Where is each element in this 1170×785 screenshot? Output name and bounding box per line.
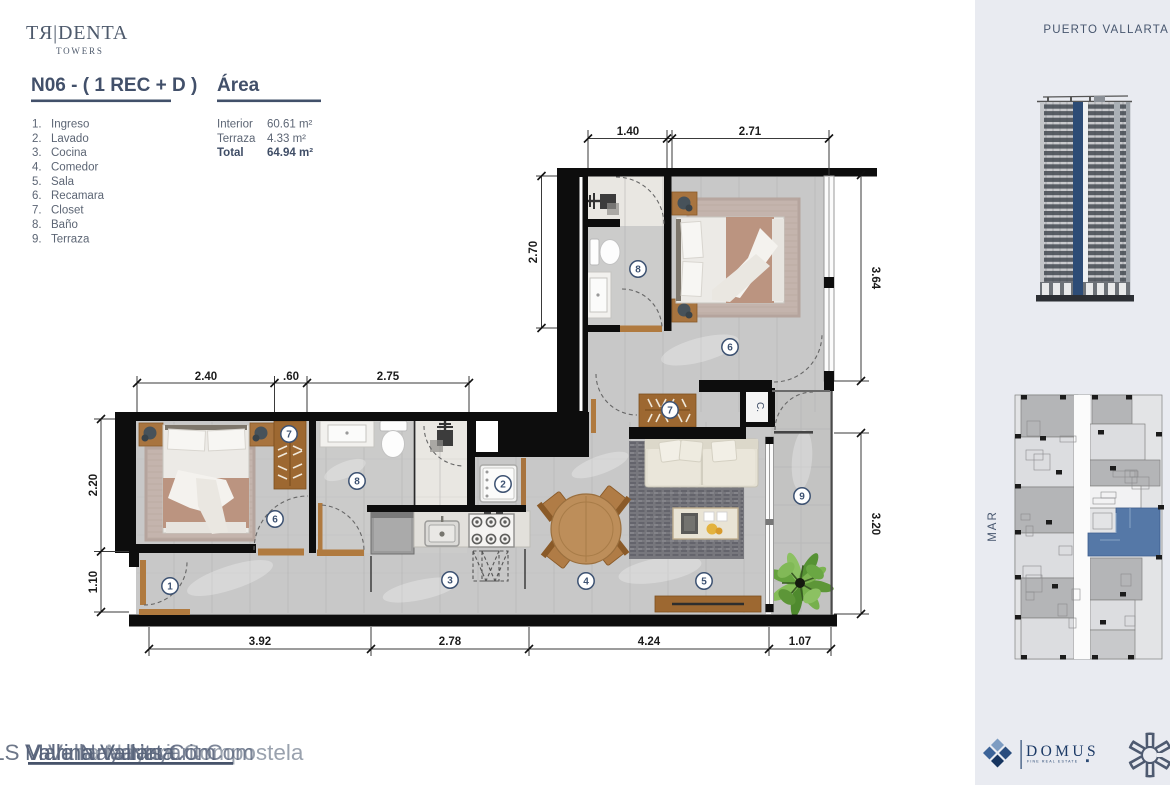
svg-text:2.71: 2.71 — [739, 126, 762, 138]
svg-text:Terraza: Terraza — [51, 233, 90, 245]
svg-text:1.07: 1.07 — [789, 636, 811, 648]
svg-text:C.: C. — [754, 402, 765, 412]
svg-text:4.33 m²: 4.33 m² — [267, 133, 306, 145]
svg-text:PUERTO VALLARTA: PUERTO VALLARTA — [1043, 24, 1169, 36]
svg-text:3.20: 3.20 — [869, 513, 881, 535]
svg-text:1.40: 1.40 — [617, 126, 639, 138]
svg-text:Área: Área — [217, 74, 260, 96]
svg-text:7: 7 — [286, 430, 292, 441]
svg-text:Lavado: Lavado — [51, 133, 89, 145]
svg-text:Comedor: Comedor — [51, 162, 98, 174]
svg-text:Sala: Sala — [51, 176, 75, 188]
svg-text:MAR: MAR — [987, 510, 999, 542]
svg-text:Cocina: Cocina — [51, 147, 87, 159]
svg-text:Vallarta Nayarit Com: Vallarta Nayarit Com — [48, 740, 254, 765]
svg-text:6: 6 — [272, 515, 278, 526]
svg-text:4.: 4. — [32, 162, 42, 174]
svg-text:60.61 m²: 60.61 m² — [267, 119, 313, 131]
svg-text:4: 4 — [583, 577, 589, 588]
svg-text:N06 - ( 1 REC + D ): N06 - ( 1 REC + D ) — [31, 75, 197, 96]
svg-text:2.: 2. — [32, 133, 42, 145]
svg-text:Ingreso: Ingreso — [51, 119, 89, 131]
svg-text:2.70: 2.70 — [528, 241, 540, 263]
svg-text:DOMUS: DOMUS — [1026, 743, 1099, 760]
svg-text:FINE REAL ESTATE: FINE REAL ESTATE — [1027, 760, 1078, 764]
svg-text:4.24: 4.24 — [638, 636, 661, 648]
svg-text:2: 2 — [500, 480, 506, 491]
svg-text:.60: .60 — [283, 371, 299, 383]
svg-text:2.78: 2.78 — [439, 636, 462, 648]
svg-text:5.: 5. — [32, 176, 42, 188]
svg-text:TOWERS: TOWERS — [56, 46, 104, 56]
svg-text:2.75: 2.75 — [377, 371, 400, 383]
svg-text:Total: Total — [217, 147, 244, 159]
svg-text:3: 3 — [447, 576, 453, 587]
svg-text:Baño: Baño — [51, 219, 78, 231]
svg-text:8.: 8. — [32, 219, 42, 231]
svg-text:5: 5 — [701, 577, 707, 588]
svg-text:2.20: 2.20 — [88, 474, 100, 496]
svg-text:6: 6 — [727, 343, 733, 354]
svg-text:3.64: 3.64 — [869, 267, 881, 290]
svg-text:Recamara: Recamara — [51, 190, 105, 202]
svg-text:1.10: 1.10 — [88, 571, 100, 593]
svg-text:LS: LS — [0, 740, 20, 765]
svg-text:3.: 3. — [32, 147, 42, 159]
svg-text:7.: 7. — [32, 205, 42, 217]
svg-text:Closet: Closet — [51, 205, 84, 217]
svg-text:8: 8 — [635, 265, 641, 276]
svg-text:6.: 6. — [32, 190, 42, 202]
svg-text:64.94 m²: 64.94 m² — [267, 147, 313, 159]
svg-text:9: 9 — [799, 492, 805, 503]
svg-text:3.92: 3.92 — [249, 636, 271, 648]
svg-text:1: 1 — [167, 582, 173, 593]
svg-text:Interior: Interior — [217, 119, 253, 131]
svg-text:8: 8 — [354, 477, 360, 488]
svg-text:9.: 9. — [32, 233, 42, 245]
svg-text:Terraza: Terraza — [217, 133, 256, 145]
svg-text:7: 7 — [667, 406, 673, 417]
svg-text:TЯ|DENTA: TЯ|DENTA — [26, 22, 128, 44]
svg-text:2.40: 2.40 — [195, 371, 217, 383]
svg-text:1.: 1. — [32, 119, 42, 131]
